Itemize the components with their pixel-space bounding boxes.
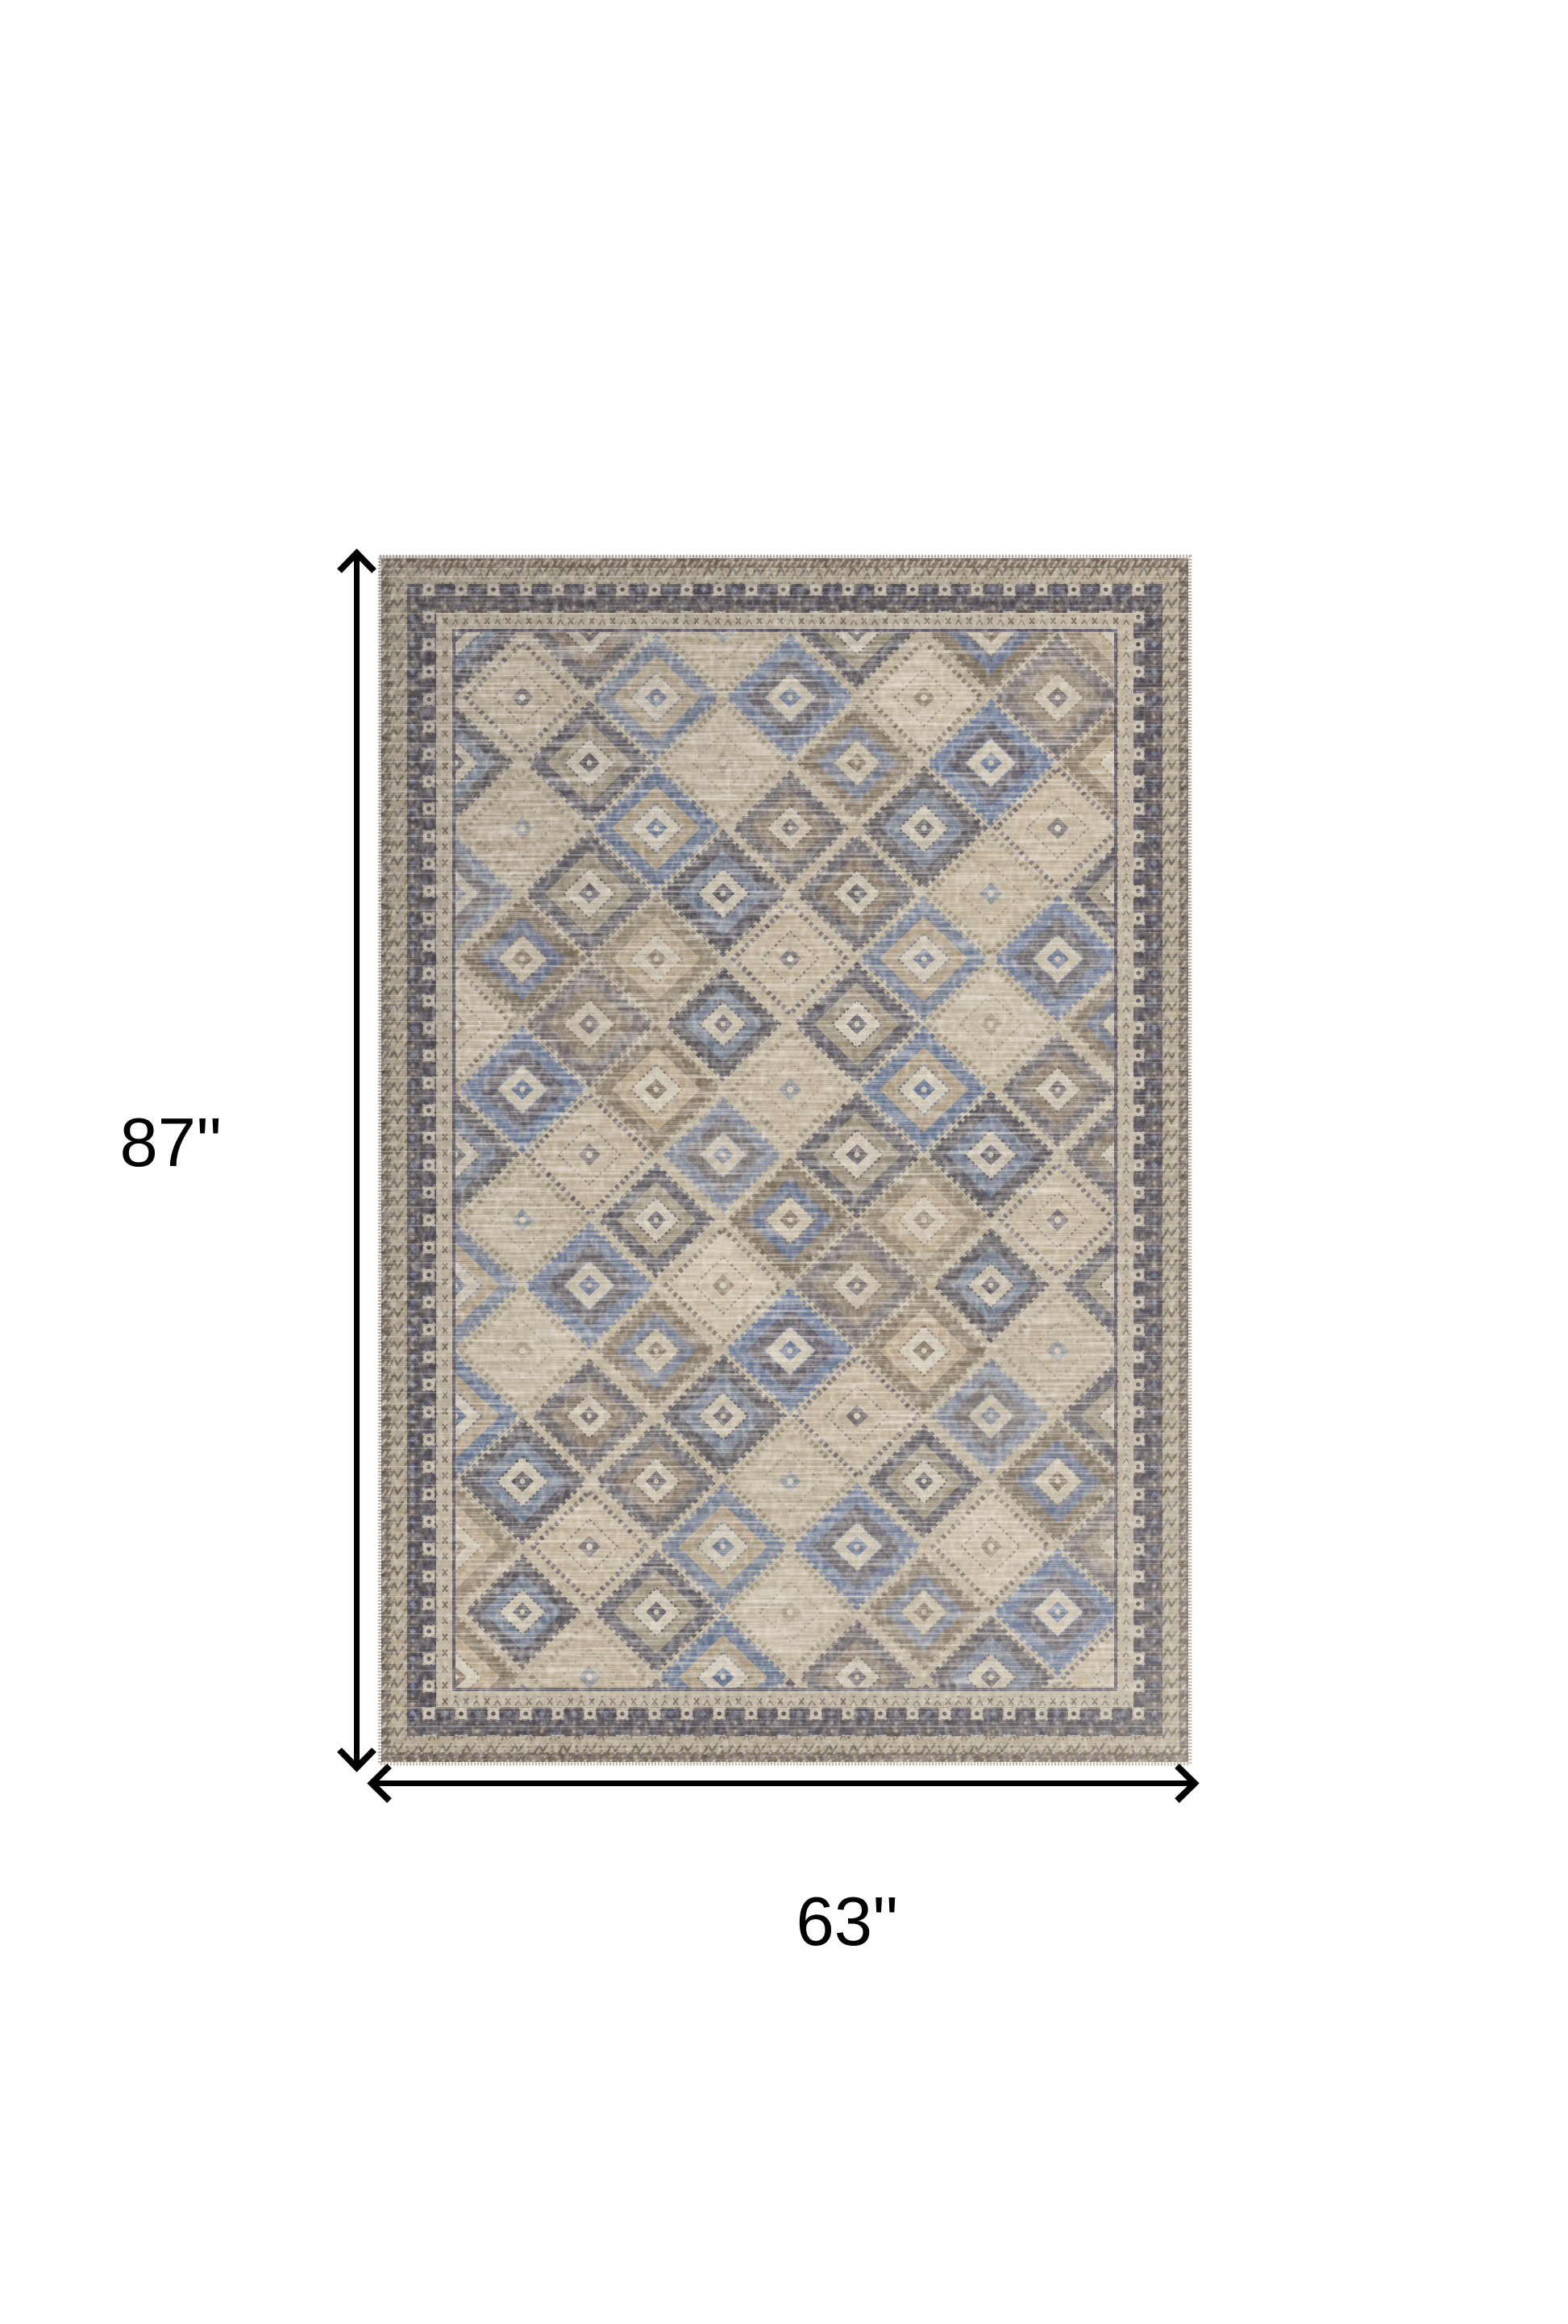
svg-text:87'': 87'' xyxy=(119,1105,222,1181)
svg-text:63'': 63'' xyxy=(796,1884,898,1960)
